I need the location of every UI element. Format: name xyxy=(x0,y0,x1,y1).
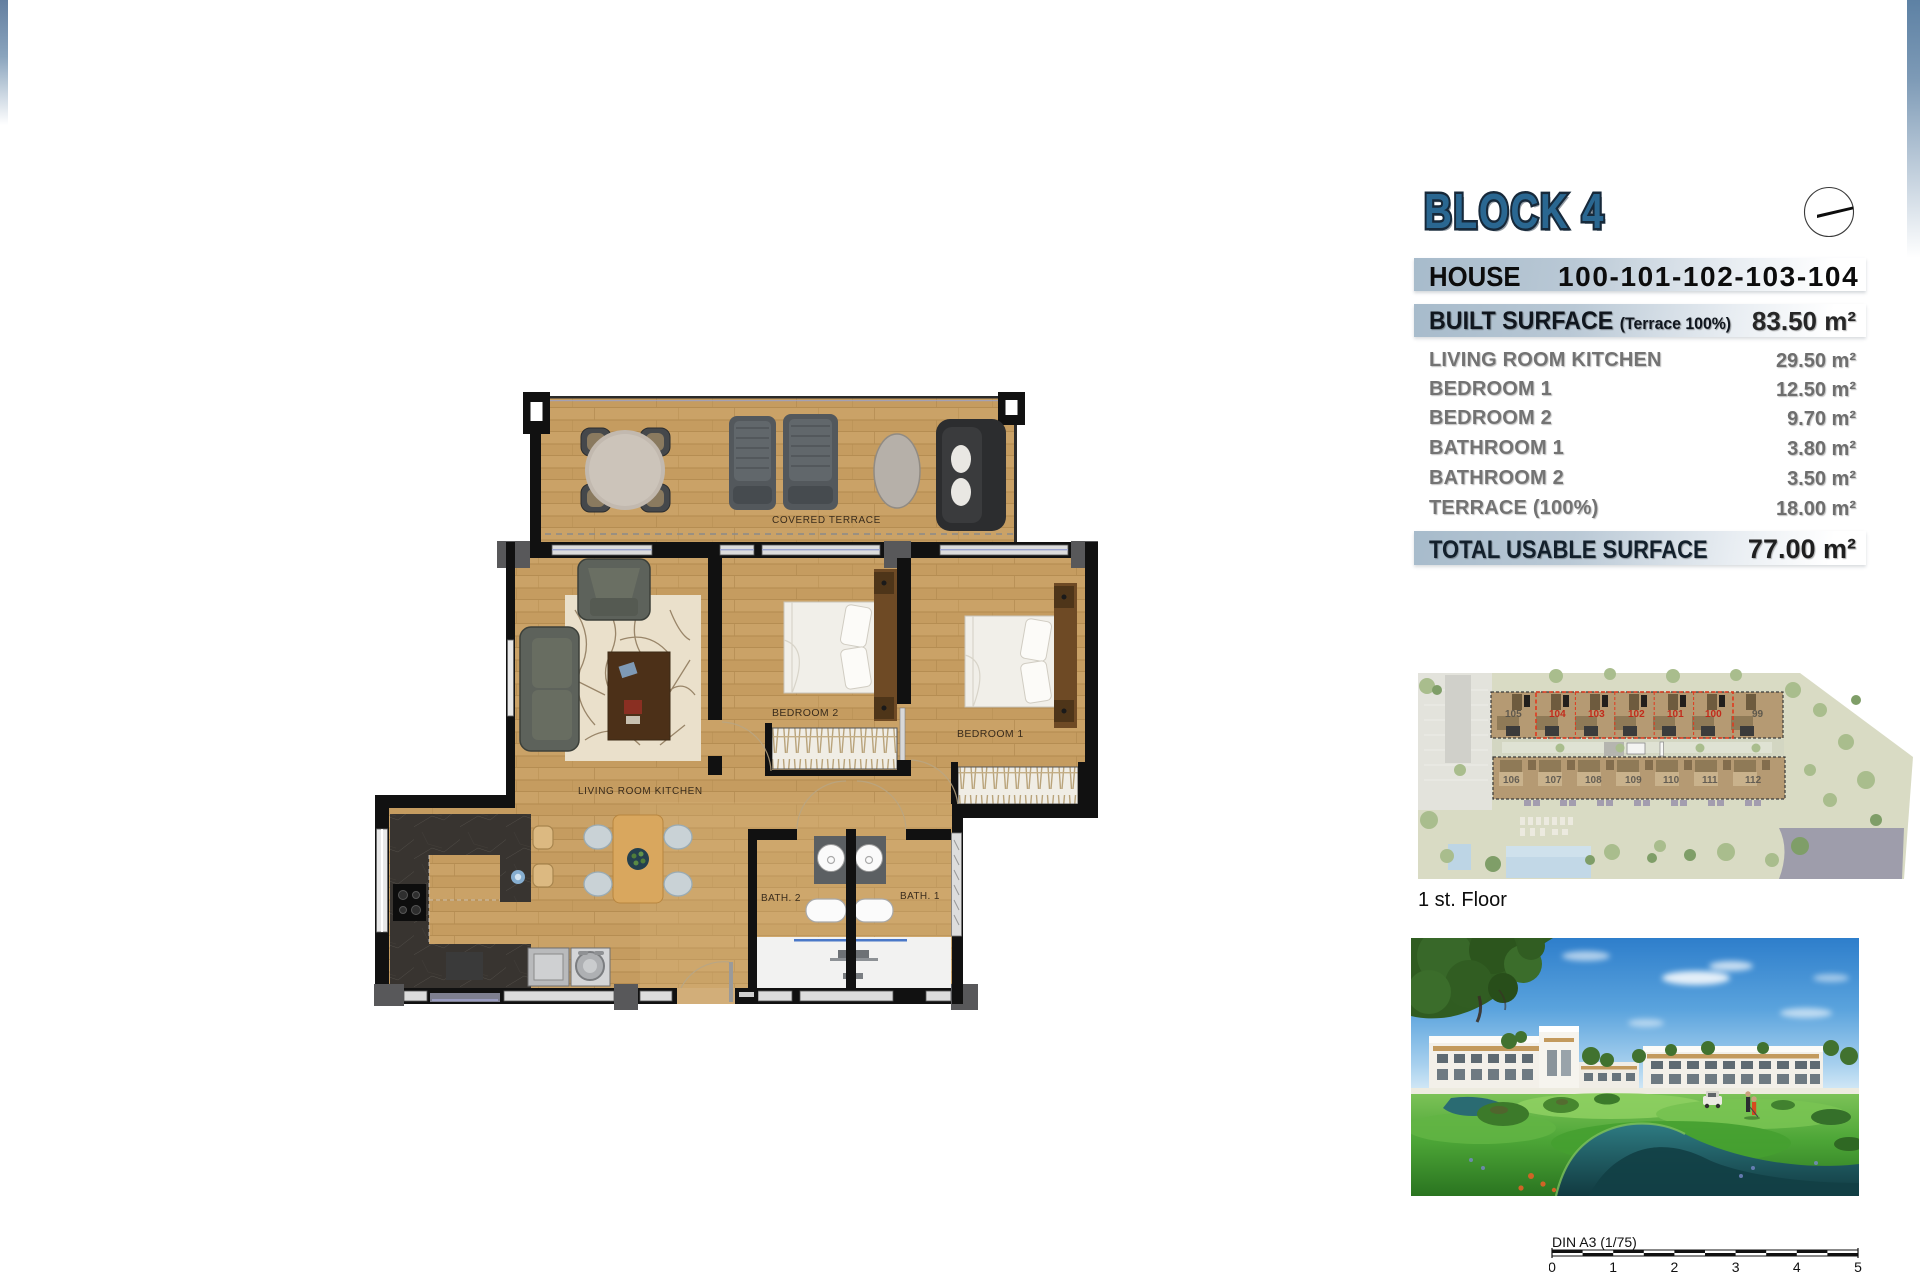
svg-text:BEDROOM 2: BEDROOM 2 xyxy=(772,707,839,719)
svg-text:BATH. 1: BATH. 1 xyxy=(900,891,940,902)
svg-text:5: 5 xyxy=(1854,1259,1862,1275)
svg-text:112: 112 xyxy=(1745,775,1762,786)
svg-text:109: 109 xyxy=(1625,775,1642,786)
svg-text:BEDROOM 1: BEDROOM 1 xyxy=(957,728,1024,740)
svg-text:3: 3 xyxy=(1732,1259,1740,1275)
svg-text:99: 99 xyxy=(1752,709,1764,720)
svg-text:1: 1 xyxy=(1609,1259,1617,1275)
svg-text:107: 107 xyxy=(1545,775,1562,786)
svg-text:4: 4 xyxy=(1793,1259,1801,1275)
svg-text:103: 103 xyxy=(1588,709,1605,720)
svg-text:BATH. 2: BATH. 2 xyxy=(761,893,801,904)
svg-text:LIVING ROOM KITCHEN: LIVING ROOM KITCHEN xyxy=(578,786,703,797)
svg-text:0: 0 xyxy=(1549,1259,1556,1275)
svg-text:2: 2 xyxy=(1671,1259,1679,1275)
svg-text:101: 101 xyxy=(1667,709,1684,720)
svg-text:110: 110 xyxy=(1663,775,1680,786)
svg-text:105: 105 xyxy=(1505,709,1522,720)
svg-text:111: 111 xyxy=(1702,775,1718,786)
svg-text:100: 100 xyxy=(1705,709,1722,720)
svg-text:104: 104 xyxy=(1549,709,1566,720)
svg-text:COVERED TERRACE: COVERED TERRACE xyxy=(772,515,881,526)
svg-text:108: 108 xyxy=(1585,775,1602,786)
svg-text:106: 106 xyxy=(1503,775,1520,786)
svg-text:102: 102 xyxy=(1628,709,1645,720)
